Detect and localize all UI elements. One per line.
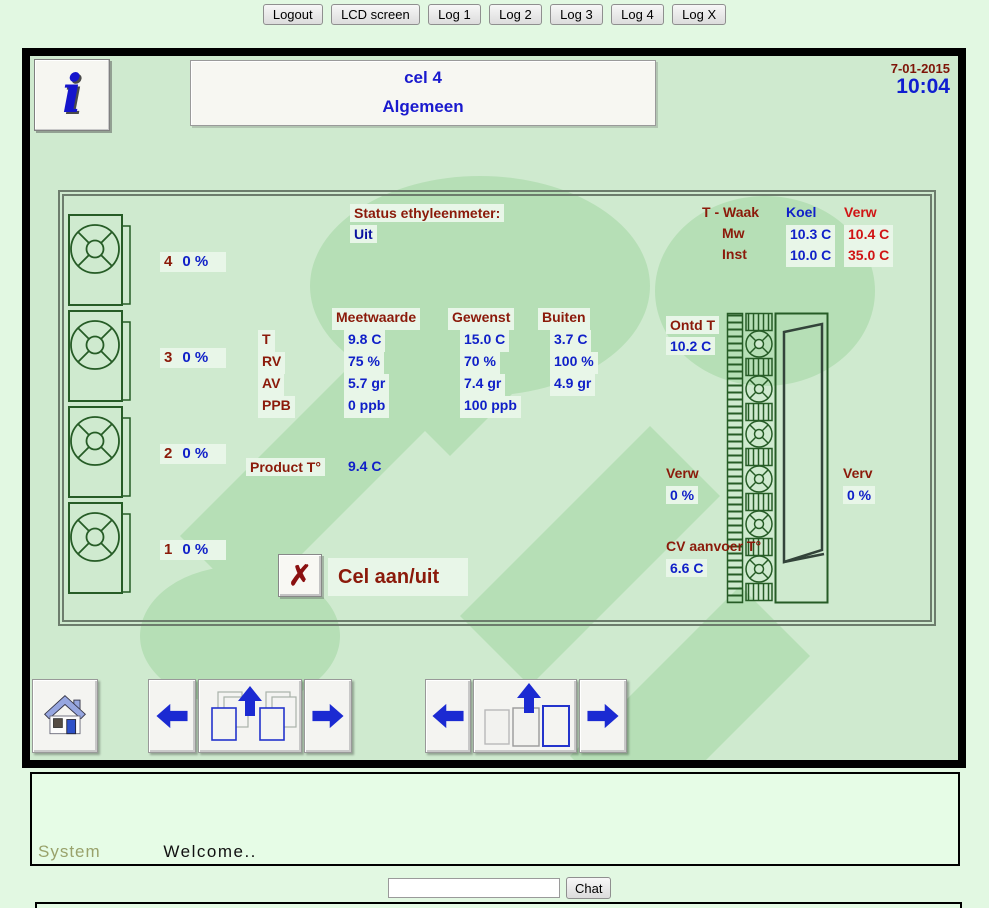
fan-unit bbox=[68, 310, 132, 402]
next-screen-button[interactable] bbox=[304, 679, 352, 753]
chat-sender: System bbox=[38, 842, 101, 861]
twaak-mw-verw: 10.4 C bbox=[844, 225, 893, 246]
logx-button[interactable]: Log X bbox=[672, 4, 726, 25]
meas-cell: 0 ppb bbox=[344, 396, 389, 418]
fan-unit bbox=[68, 502, 132, 594]
fan-number: 4 bbox=[164, 253, 172, 270]
fan-icon bbox=[68, 214, 132, 306]
log2-button[interactable]: Log 2 bbox=[489, 4, 542, 25]
meas-cell: 75 % bbox=[344, 352, 384, 374]
fan-number: 1 bbox=[164, 541, 172, 558]
meas-cell: 100 % bbox=[550, 352, 598, 374]
info-button[interactable]: i bbox=[34, 59, 110, 131]
ethylene-status-label: Status ethyleenmeter: bbox=[350, 204, 504, 222]
meas-row-label: T bbox=[258, 330, 275, 352]
hmi-panel: i cel 4 Algemeen 7-01-2015 10:04 Status … bbox=[22, 48, 966, 768]
next-cell-button[interactable] bbox=[579, 679, 627, 753]
arrow-left-icon bbox=[153, 697, 191, 735]
verw-label: Verw bbox=[666, 465, 699, 481]
meas-cell: 70 % bbox=[460, 352, 500, 374]
fan-speed-readout: 40 % bbox=[160, 252, 226, 272]
fan-speed: 0 % bbox=[182, 349, 208, 366]
arrow-right-icon bbox=[584, 697, 622, 735]
top-toolbar: Logout LCD screen Log 1 Log 2 Log 3 Log … bbox=[0, 4, 989, 25]
screens-up-button[interactable] bbox=[198, 679, 302, 753]
screen-title: cel 4 Algemeen bbox=[190, 60, 656, 126]
verw-value: 0 % bbox=[666, 486, 698, 504]
prev-cell-button[interactable] bbox=[425, 679, 471, 753]
cell-onoff-label: Cel aan/uit bbox=[328, 558, 468, 596]
meas-cell: 7.4 gr bbox=[460, 374, 505, 396]
measurements-table: Meetwaarde Gewenst Buiten T 9.8 C 15.0 C… bbox=[258, 308, 642, 418]
fan-unit bbox=[68, 406, 132, 498]
twaak-inst-verw: 35.0 C bbox=[844, 246, 893, 267]
datetime: 7-01-2015 10:04 bbox=[891, 61, 950, 98]
fan-speed: 0 % bbox=[182, 445, 208, 462]
logout-button[interactable]: Logout bbox=[263, 4, 323, 25]
chat-last-line: System Welcome.. bbox=[38, 842, 257, 862]
chat-send-button[interactable]: Chat bbox=[566, 877, 611, 899]
twaak-col-koel: Koel bbox=[786, 204, 816, 225]
screen-subtitle: Algemeen bbox=[191, 97, 655, 117]
twaak-inst-koel: 10.0 C bbox=[786, 246, 835, 267]
meas-cell: 5.7 gr bbox=[344, 374, 389, 396]
chat-log: System Welcome.. bbox=[30, 772, 960, 866]
fan-number: 2 bbox=[164, 445, 172, 462]
cell-title: cel 4 bbox=[191, 68, 655, 88]
twaak-title: T - Waak bbox=[702, 204, 759, 225]
lcd-screen-button[interactable]: LCD screen bbox=[331, 4, 420, 25]
next-panel-edge bbox=[35, 902, 962, 908]
meas-header-gewenst: Gewenst bbox=[448, 308, 514, 330]
meas-row-label: AV bbox=[258, 374, 284, 396]
pages-up-icon bbox=[202, 684, 298, 748]
ethylene-status-value: Uit bbox=[350, 225, 377, 243]
cv-value: 6.6 C bbox=[666, 559, 707, 577]
prev-screen-button[interactable] bbox=[148, 679, 196, 753]
product-temp-label: Product T° bbox=[246, 458, 325, 476]
twaak-row-label: Mw bbox=[702, 225, 745, 246]
meas-cell: 3.7 C bbox=[550, 330, 591, 352]
meas-row-label: PPB bbox=[258, 396, 295, 418]
fan-speed-readout: 30 % bbox=[160, 348, 226, 368]
verv-value: 0 % bbox=[843, 486, 875, 504]
fan-speed: 0 % bbox=[182, 253, 208, 270]
meas-cell: 4.9 gr bbox=[550, 374, 595, 396]
log1-button[interactable]: Log 1 bbox=[428, 4, 481, 25]
fan-icon bbox=[68, 502, 132, 594]
meas-header-meetwaarde: Meetwaarde bbox=[332, 308, 420, 330]
twaak-table: T - Waak Koel Verw Mw 10.3 C 10.4 C Inst… bbox=[702, 204, 906, 267]
fan-speed: 0 % bbox=[182, 541, 208, 558]
cells-up-button[interactable] bbox=[473, 679, 577, 753]
arrow-right-icon bbox=[309, 697, 347, 735]
cells-up-icon bbox=[477, 682, 573, 750]
home-button[interactable] bbox=[32, 679, 98, 753]
chat-message: Welcome.. bbox=[163, 842, 257, 861]
arrow-left-icon bbox=[429, 697, 467, 735]
time-label: 10:04 bbox=[891, 76, 950, 98]
meas-header-buiten: Buiten bbox=[538, 308, 590, 330]
evaporator-graphic bbox=[726, 312, 832, 604]
fan-icon bbox=[68, 310, 132, 402]
home-icon bbox=[42, 693, 88, 739]
log3-button[interactable]: Log 3 bbox=[550, 4, 603, 25]
fan-unit bbox=[68, 214, 132, 306]
cv-label: CV aanvoer T° bbox=[666, 538, 761, 554]
x-icon: ✗ bbox=[288, 562, 311, 590]
ontd-value: 10.2 C bbox=[666, 337, 715, 355]
meas-row-label: RV bbox=[258, 352, 285, 374]
twaak-mw-koel: 10.3 C bbox=[786, 225, 835, 246]
fan-speed-readout: 10 % bbox=[160, 540, 226, 560]
meas-cell: 9.8 C bbox=[344, 330, 385, 352]
date-label: 7-01-2015 bbox=[891, 61, 950, 76]
twaak-row-label: Inst bbox=[702, 246, 747, 267]
info-icon: i bbox=[62, 69, 82, 121]
product-temp-value: 9.4 C bbox=[348, 458, 381, 474]
ontd-label: Ontd T bbox=[666, 316, 719, 334]
log4-button[interactable]: Log 4 bbox=[611, 4, 664, 25]
fan-speed-readout: 20 % bbox=[160, 444, 226, 464]
cell-onoff-button[interactable]: ✗ bbox=[278, 554, 322, 597]
twaak-col-verw: Verw bbox=[844, 204, 877, 225]
verv-label: Verv bbox=[843, 465, 873, 481]
meas-cell: 100 ppb bbox=[460, 396, 521, 418]
chat-input[interactable] bbox=[388, 878, 560, 898]
fan-number: 3 bbox=[164, 349, 172, 366]
fan-icon bbox=[68, 406, 132, 498]
meas-cell: 15.0 C bbox=[460, 330, 509, 352]
